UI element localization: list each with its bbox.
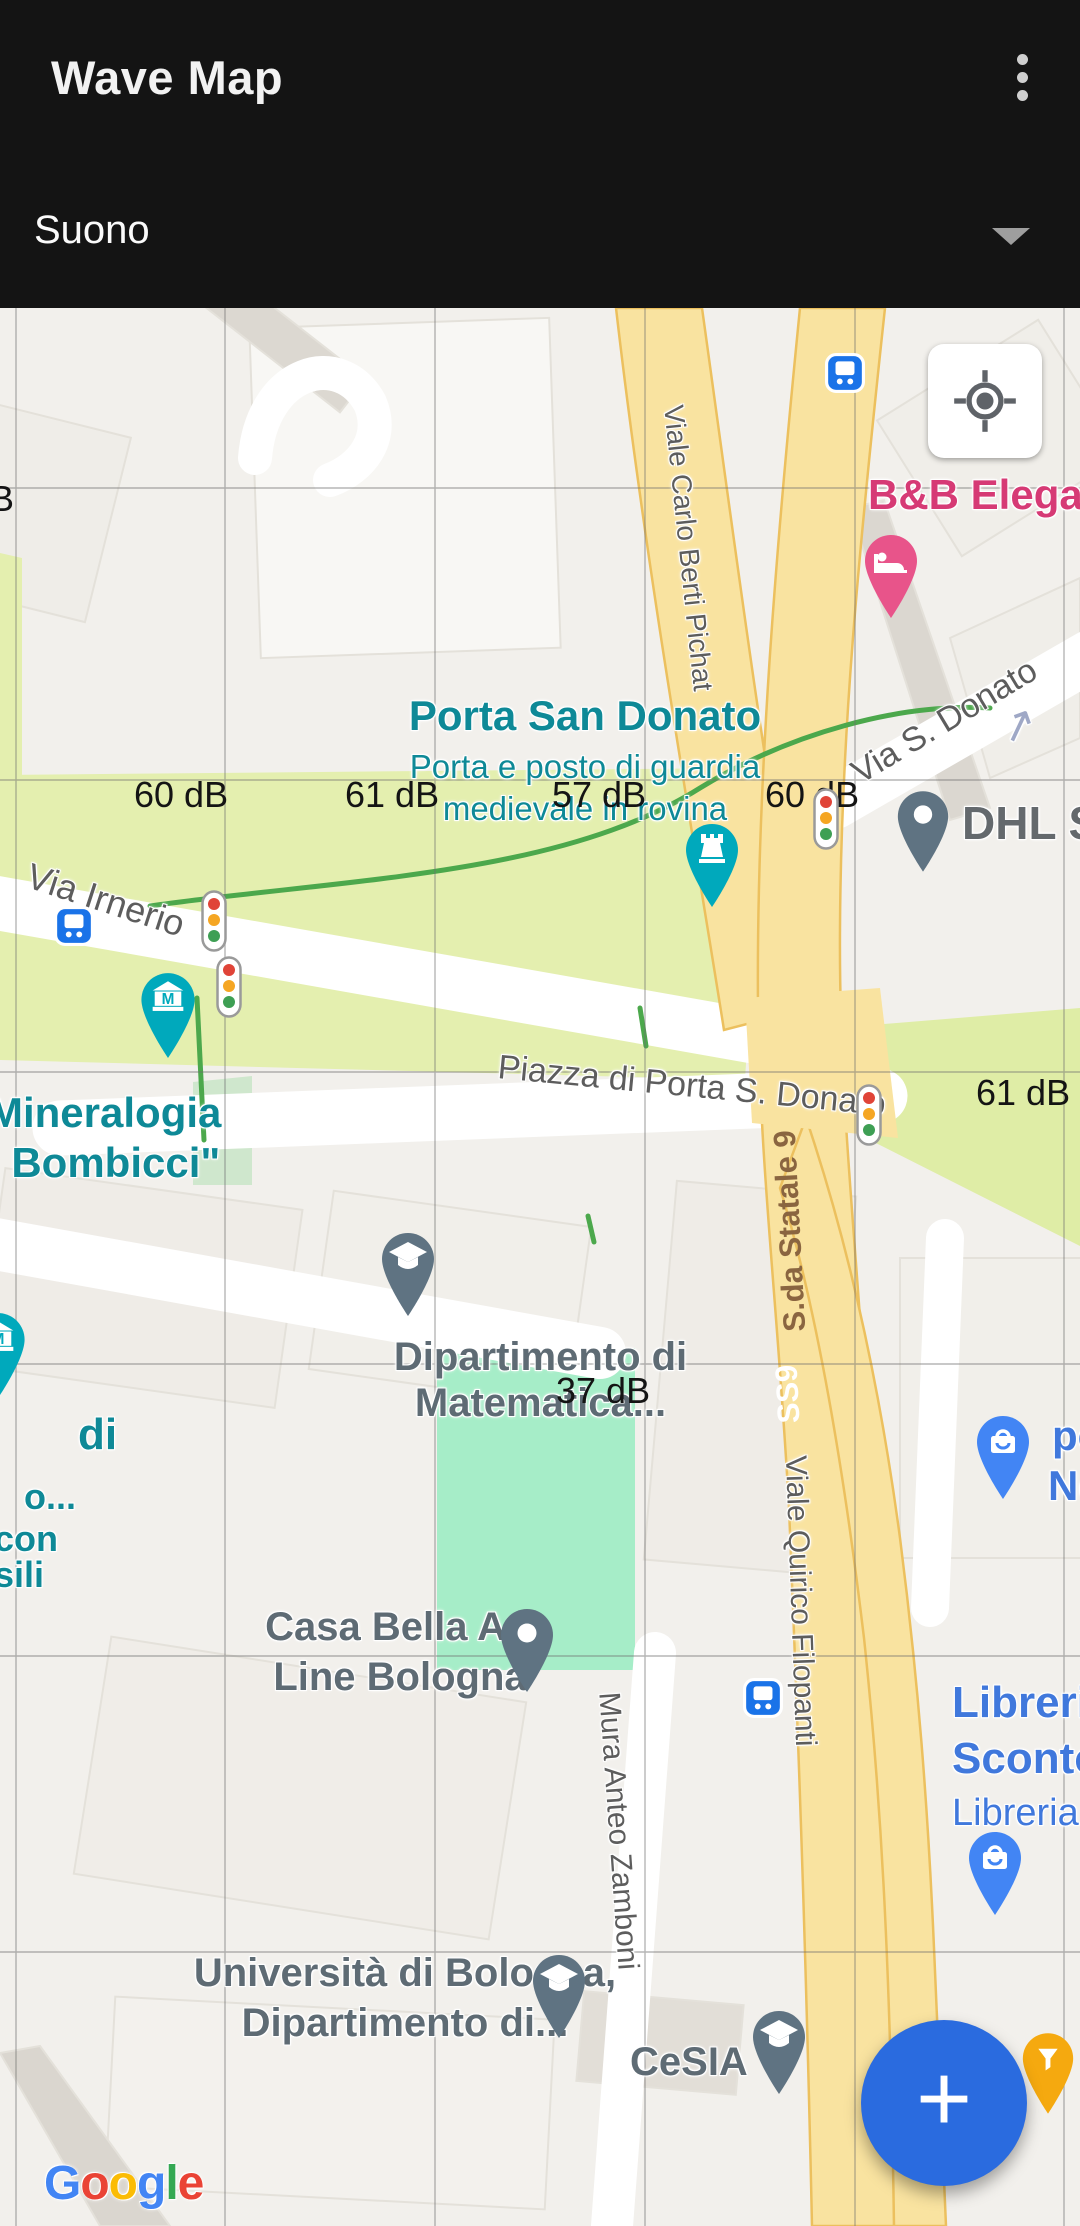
db-reading: 37 dB [556,1370,650,1412]
generic-pin-icon[interactable] [893,786,953,874]
db-reading: 61 dB [345,774,439,816]
school-pin-icon[interactable] [377,1228,439,1318]
add-measurement-fab[interactable]: + [861,2020,1027,2186]
museum-pin-icon[interactable]: M [0,1308,30,1400]
layer-selector-value: Suono [34,208,150,253]
poi-title: Università di Bologna, [100,1948,710,1998]
my-location-button[interactable] [928,344,1042,458]
poi-label-mineralogia[interactable]: Mineralogia i Bombicci" [0,1088,221,1188]
hotel-pin-icon[interactable] [860,530,922,620]
poi-label-fragment: di [78,1410,117,1460]
poi-label-fragment: o... [24,1476,76,1518]
bus-stop-icon[interactable] [54,906,94,946]
google-letter: o [80,2157,108,2210]
db-reading: 61 dB [976,1072,1070,1114]
castle-pin-icon[interactable] [681,819,743,909]
poi-title: Mineralogia [0,1088,221,1138]
poi-label-bnb[interactable]: B&B Elegan [868,471,1080,519]
app-header: Wave Map Suono [0,0,1080,308]
poi-label-matematica[interactable]: Dipartimento di Matematica... [348,1334,733,1426]
poi-title: Sconto [952,1734,1080,1784]
poi-label-libreria[interactable]: Libreria Sconto Libreria [952,1678,1080,1835]
plus-icon: + [916,2051,972,2147]
map-canvas[interactable]: Via Irnerio Viale Carlo Berti Pichat Via… [0,308,1080,2226]
street-label-ss9: SS9 [767,1333,809,1455]
db-reading: 60 dB [134,774,228,816]
poi-title: i Bombicci" [0,1138,221,1188]
bus-stop-icon[interactable] [743,1678,783,1718]
kebab-dot-icon [1017,90,1028,101]
db-reading: 57 dB [552,774,646,816]
traffic-light-icon [216,956,242,1018]
dropdown-arrow-icon [992,228,1030,245]
school-pin-icon[interactable] [748,2006,810,2096]
overflow-menu-button[interactable] [1002,54,1042,120]
shopping-pin-icon[interactable] [972,1410,1034,1502]
kebab-dot-icon [1017,72,1028,83]
traffic-light-icon [201,890,227,952]
svg-text:M: M [0,1331,4,1348]
poi-label-universita[interactable]: Università di Bologna, Dipartimento di..… [100,1948,710,2048]
google-letter: e [178,2157,204,2210]
poi-label-fragment: sili [0,1554,44,1596]
traffic-light-icon [856,1084,882,1146]
kebab-dot-icon [1017,54,1028,65]
poi-label-cesia[interactable]: CeSIA [630,2040,748,2085]
layer-selector-dropdown[interactable]: Suono [0,196,1080,286]
poi-title: Dipartimento di... [100,1998,710,2048]
app-screen: Wave Map Suono [0,0,1080,2226]
poi-title: Matematica... [348,1380,733,1426]
poi-label-dhl[interactable]: DHL S [962,796,1080,850]
my-location-icon [951,367,1019,435]
poi-title: Dipartimento di [348,1334,733,1380]
poi-label-ne[interactable]: Ne [1048,1462,1080,1510]
google-letter: l [165,2157,177,2210]
poi-label-po[interactable]: po [1052,1412,1080,1460]
traffic-light-icon [813,788,839,850]
museum-pin-icon[interactable]: M [136,968,200,1060]
generic-pin-icon[interactable] [496,1604,558,1694]
google-logo: Google [44,2156,203,2211]
db-reading-cut: B [0,478,14,520]
poi-title: Porta San Donato [383,692,787,740]
school-pin-icon[interactable] [528,1950,590,2040]
google-letter: G [44,2157,80,2210]
bus-stop-icon[interactable] [825,353,865,393]
google-letter: g [137,2157,165,2210]
app-title: Wave Map [51,50,283,105]
poi-title: Libreria [952,1678,1080,1728]
shopping-pin-icon[interactable] [964,1826,1026,1918]
svg-text:M: M [162,991,175,1008]
google-letter: o [109,2157,137,2210]
orange-pin-icon[interactable] [1018,2026,1078,2118]
